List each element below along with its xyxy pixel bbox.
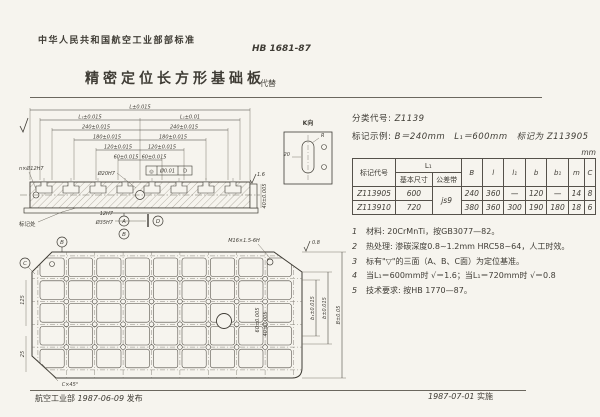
cell-B: 380 bbox=[461, 201, 482, 215]
extension-lines bbox=[30, 108, 250, 180]
dim-120-right: 120±0.015 bbox=[148, 145, 176, 151]
footer-right: 1987-07-01 实施 bbox=[428, 391, 493, 402]
inner-dim-40: 40±0.005 bbox=[263, 312, 269, 337]
notes-list: 1 材料: 20CrMnTi，按GB3077—82。 2 热处理: 渗碳深度0.… bbox=[352, 227, 596, 297]
dim-b1: b₁±0.015 bbox=[310, 296, 316, 320]
dim-L: L±0.015 bbox=[129, 105, 150, 111]
cell-C: 8 bbox=[584, 187, 595, 201]
dim-120-left: 120±0.015 bbox=[104, 145, 132, 151]
implementation-date: 1987-07-01 bbox=[428, 392, 475, 401]
standard-org: 中华人民共和国航空工业部部标准 bbox=[38, 33, 196, 46]
roughness-symbol bbox=[304, 241, 310, 251]
concentricity-icon: ◎ bbox=[149, 169, 154, 175]
corner-hole bbox=[50, 262, 55, 267]
note-text: 技术要求: 按HB 1770—87。 bbox=[366, 286, 472, 297]
col-l: l bbox=[482, 159, 503, 187]
k-hole bbox=[322, 145, 327, 150]
large-hole bbox=[217, 314, 232, 329]
issuing-body: 航空工业部 bbox=[35, 394, 75, 403]
note-number: 3 bbox=[352, 257, 366, 268]
note-number: 2 bbox=[352, 242, 366, 253]
note-item: 5 技术要求: 按HB 1770—87。 bbox=[352, 286, 596, 297]
plan-view: B C M16×1.5-6H 0.8 b₁±0.015 b±0.015 B±0.… bbox=[18, 236, 353, 388]
dim-60-right: 60±0.015 bbox=[142, 155, 167, 161]
standard-sheet: 中华人民共和国航空工业部部标准 HB 1681-87 精密定位长方形基础板 代替 bbox=[0, 0, 600, 417]
cell-l1: 720 bbox=[396, 201, 433, 215]
bore-12h7: 12H7 bbox=[100, 211, 114, 217]
cell-code: Z113905 bbox=[353, 187, 396, 201]
marking-example-label: 标记示例: bbox=[352, 132, 391, 142]
cell-B: 240 bbox=[461, 187, 482, 201]
info-panel: 分类代号: Z1139 标记示例: B＝240mm L₁＝600mm 标记为 Z… bbox=[352, 112, 596, 301]
dim-240-right: 240±0.015 bbox=[170, 125, 198, 131]
plan-datum-b-label: B bbox=[60, 240, 64, 246]
cell-l: 360 bbox=[482, 187, 503, 201]
implemented-label: 实施 bbox=[477, 392, 493, 401]
cell-l1b: 300 bbox=[504, 201, 525, 215]
table-header-row: 标记代号 L₁ B l l₁ b b₁ m C bbox=[353, 159, 596, 173]
col-C: C bbox=[584, 159, 595, 187]
marking-place-label: 标记处 bbox=[19, 220, 36, 228]
footer-left: 航空工业部 1987-06-09 发布 bbox=[35, 393, 143, 404]
issued-label: 发布 bbox=[127, 394, 143, 403]
hole-pattern-callout: n×Ø12H7 bbox=[19, 165, 44, 172]
chamfer-note: C×45° bbox=[62, 382, 79, 388]
cell-b: 190 bbox=[525, 201, 546, 215]
issue-date: 1987-06-09 bbox=[78, 394, 125, 403]
roughness-symbol bbox=[20, 118, 28, 132]
roughness-value: 1.6 bbox=[257, 172, 265, 178]
plate-base bbox=[24, 208, 258, 213]
dim-60-left: 60±0.015 bbox=[114, 155, 139, 161]
datum-d-label: D bbox=[156, 219, 160, 225]
fcf-datum: D bbox=[183, 169, 187, 175]
dim-b: b±0.015 bbox=[322, 297, 328, 319]
class-code-line: 分类代号: Z1139 bbox=[352, 112, 596, 124]
class-code-value: Z1139 bbox=[395, 114, 425, 124]
page-title: 精密定位长方形基础板 bbox=[85, 68, 265, 88]
class-code-label: 分类代号: bbox=[352, 114, 391, 124]
cell-l1: 600 bbox=[396, 187, 433, 201]
cell-m: 14 bbox=[568, 187, 584, 201]
cell-l1b: — bbox=[504, 187, 525, 201]
bore-35h7: Ø35H7 bbox=[95, 219, 114, 226]
cell-b: 120 bbox=[525, 187, 546, 201]
k-detail-view: K向 R 20 bbox=[284, 119, 332, 184]
left-dim-125: 125 bbox=[20, 295, 26, 305]
col-l1b: l₁ bbox=[504, 159, 525, 187]
k-dim-20: 20 bbox=[284, 152, 290, 158]
note-item: 2 热处理: 渗碳深度0.8~1.2mm HRC58~64，人工时效。 bbox=[352, 242, 596, 253]
dim-240-left: 240±0.015 bbox=[82, 125, 110, 131]
col-m: m bbox=[568, 159, 584, 187]
dim-L1-right: L₁±0.01 bbox=[180, 115, 200, 121]
fcf-tolerance: Ø0.01 bbox=[159, 168, 175, 175]
note-text: 当L₁＝600mm时 √＝1.6；当L₁＝720mm时 √＝0.8 bbox=[366, 271, 556, 282]
note-item: 3 标有"▽"的三面（A、B、C面）为定位基准。 bbox=[352, 257, 596, 268]
col-b1: b₁ bbox=[547, 159, 568, 187]
k-view-title: K向 bbox=[303, 119, 314, 127]
note-text: 材料: 20CrMnTi，按GB3077—82。 bbox=[366, 227, 499, 238]
datum-a-label: A bbox=[121, 219, 126, 225]
note-text: 热处理: 渗碳深度0.8~1.2mm HRC58~64，人工时效。 bbox=[366, 242, 569, 253]
col-l1: L₁ bbox=[396, 159, 461, 173]
inner-dim-60: 60±0.005 bbox=[255, 308, 261, 333]
marking-example-value: B＝240mm L₁＝600mm 标记为 Z113905 bbox=[395, 132, 589, 142]
table-row: Z113910 720 380 360 300 190 180 18 6 bbox=[353, 201, 596, 215]
col-B: B bbox=[461, 159, 482, 187]
radius-label: R bbox=[321, 133, 324, 139]
cell-b1: — bbox=[547, 187, 568, 201]
end-cap bbox=[250, 184, 257, 208]
end-height-dim: 40±0.005 bbox=[262, 184, 268, 209]
col-l1-tol: 公差带 bbox=[432, 173, 461, 187]
dim-180-left: 180±0.015 bbox=[93, 135, 121, 141]
cell-tol: js9 bbox=[432, 187, 461, 215]
k-hole bbox=[322, 165, 327, 170]
cell-C: 6 bbox=[584, 201, 595, 215]
corner-thread-hole bbox=[267, 259, 273, 265]
header-rule bbox=[30, 97, 542, 98]
dim-B: B±0.05 bbox=[336, 306, 342, 325]
replaces-label: 代替 bbox=[260, 78, 276, 89]
plate-outline bbox=[32, 252, 302, 378]
dim-180-right: 180±0.015 bbox=[159, 135, 187, 141]
leader-line bbox=[312, 138, 319, 143]
center-bore-callout: Ø20H7 bbox=[97, 170, 116, 177]
thread-callout: M16×1.5-6H bbox=[228, 238, 260, 244]
feature-control-frame: ◎ Ø0.01 D bbox=[146, 166, 192, 175]
standard-number: HB 1681-87 bbox=[252, 44, 311, 54]
roughness-symbol bbox=[250, 174, 256, 183]
note-number: 1 bbox=[352, 227, 366, 238]
col-code: 标记代号 bbox=[353, 159, 396, 187]
unit-label: mm bbox=[352, 148, 596, 157]
marking-example-line: 标记示例: B＝240mm L₁＝600mm 标记为 Z113905 bbox=[352, 130, 596, 142]
cell-b1: 180 bbox=[547, 201, 568, 215]
plan-datum-c-label: C bbox=[23, 261, 27, 267]
cell-m: 18 bbox=[568, 201, 584, 215]
table-row: Z113905 600 js9 240 360 — 120 — 14 8 bbox=[353, 187, 596, 201]
note-item: 4 当L₁＝600mm时 √＝1.6；当L₁＝720mm时 √＝0.8 bbox=[352, 271, 596, 282]
note-number: 5 bbox=[352, 286, 366, 297]
cell-l: 360 bbox=[482, 201, 503, 215]
cell-code: Z113910 bbox=[353, 201, 396, 215]
col-l1-basic: 基本尺寸 bbox=[396, 173, 433, 187]
plan-roughness-value: 0.8 bbox=[312, 240, 320, 246]
note-number: 4 bbox=[352, 271, 366, 282]
dim-L1-left: L₁±0.015 bbox=[78, 115, 101, 121]
note-text: 标有"▽"的三面（A、B、C面）为定位基准。 bbox=[366, 257, 524, 268]
col-b: b bbox=[525, 159, 546, 187]
side-section-view: L±0.015 L₁±0.015 L₁±0.01 240±0.015 240±0… bbox=[18, 100, 363, 240]
note-item: 1 材料: 20CrMnTi，按GB3077—82。 bbox=[352, 227, 596, 238]
size-table: 标记代号 L₁ B l l₁ b b₁ m C 基本尺寸 公差带 Z113905… bbox=[352, 158, 596, 215]
left-dim-25: 25 bbox=[20, 351, 26, 357]
